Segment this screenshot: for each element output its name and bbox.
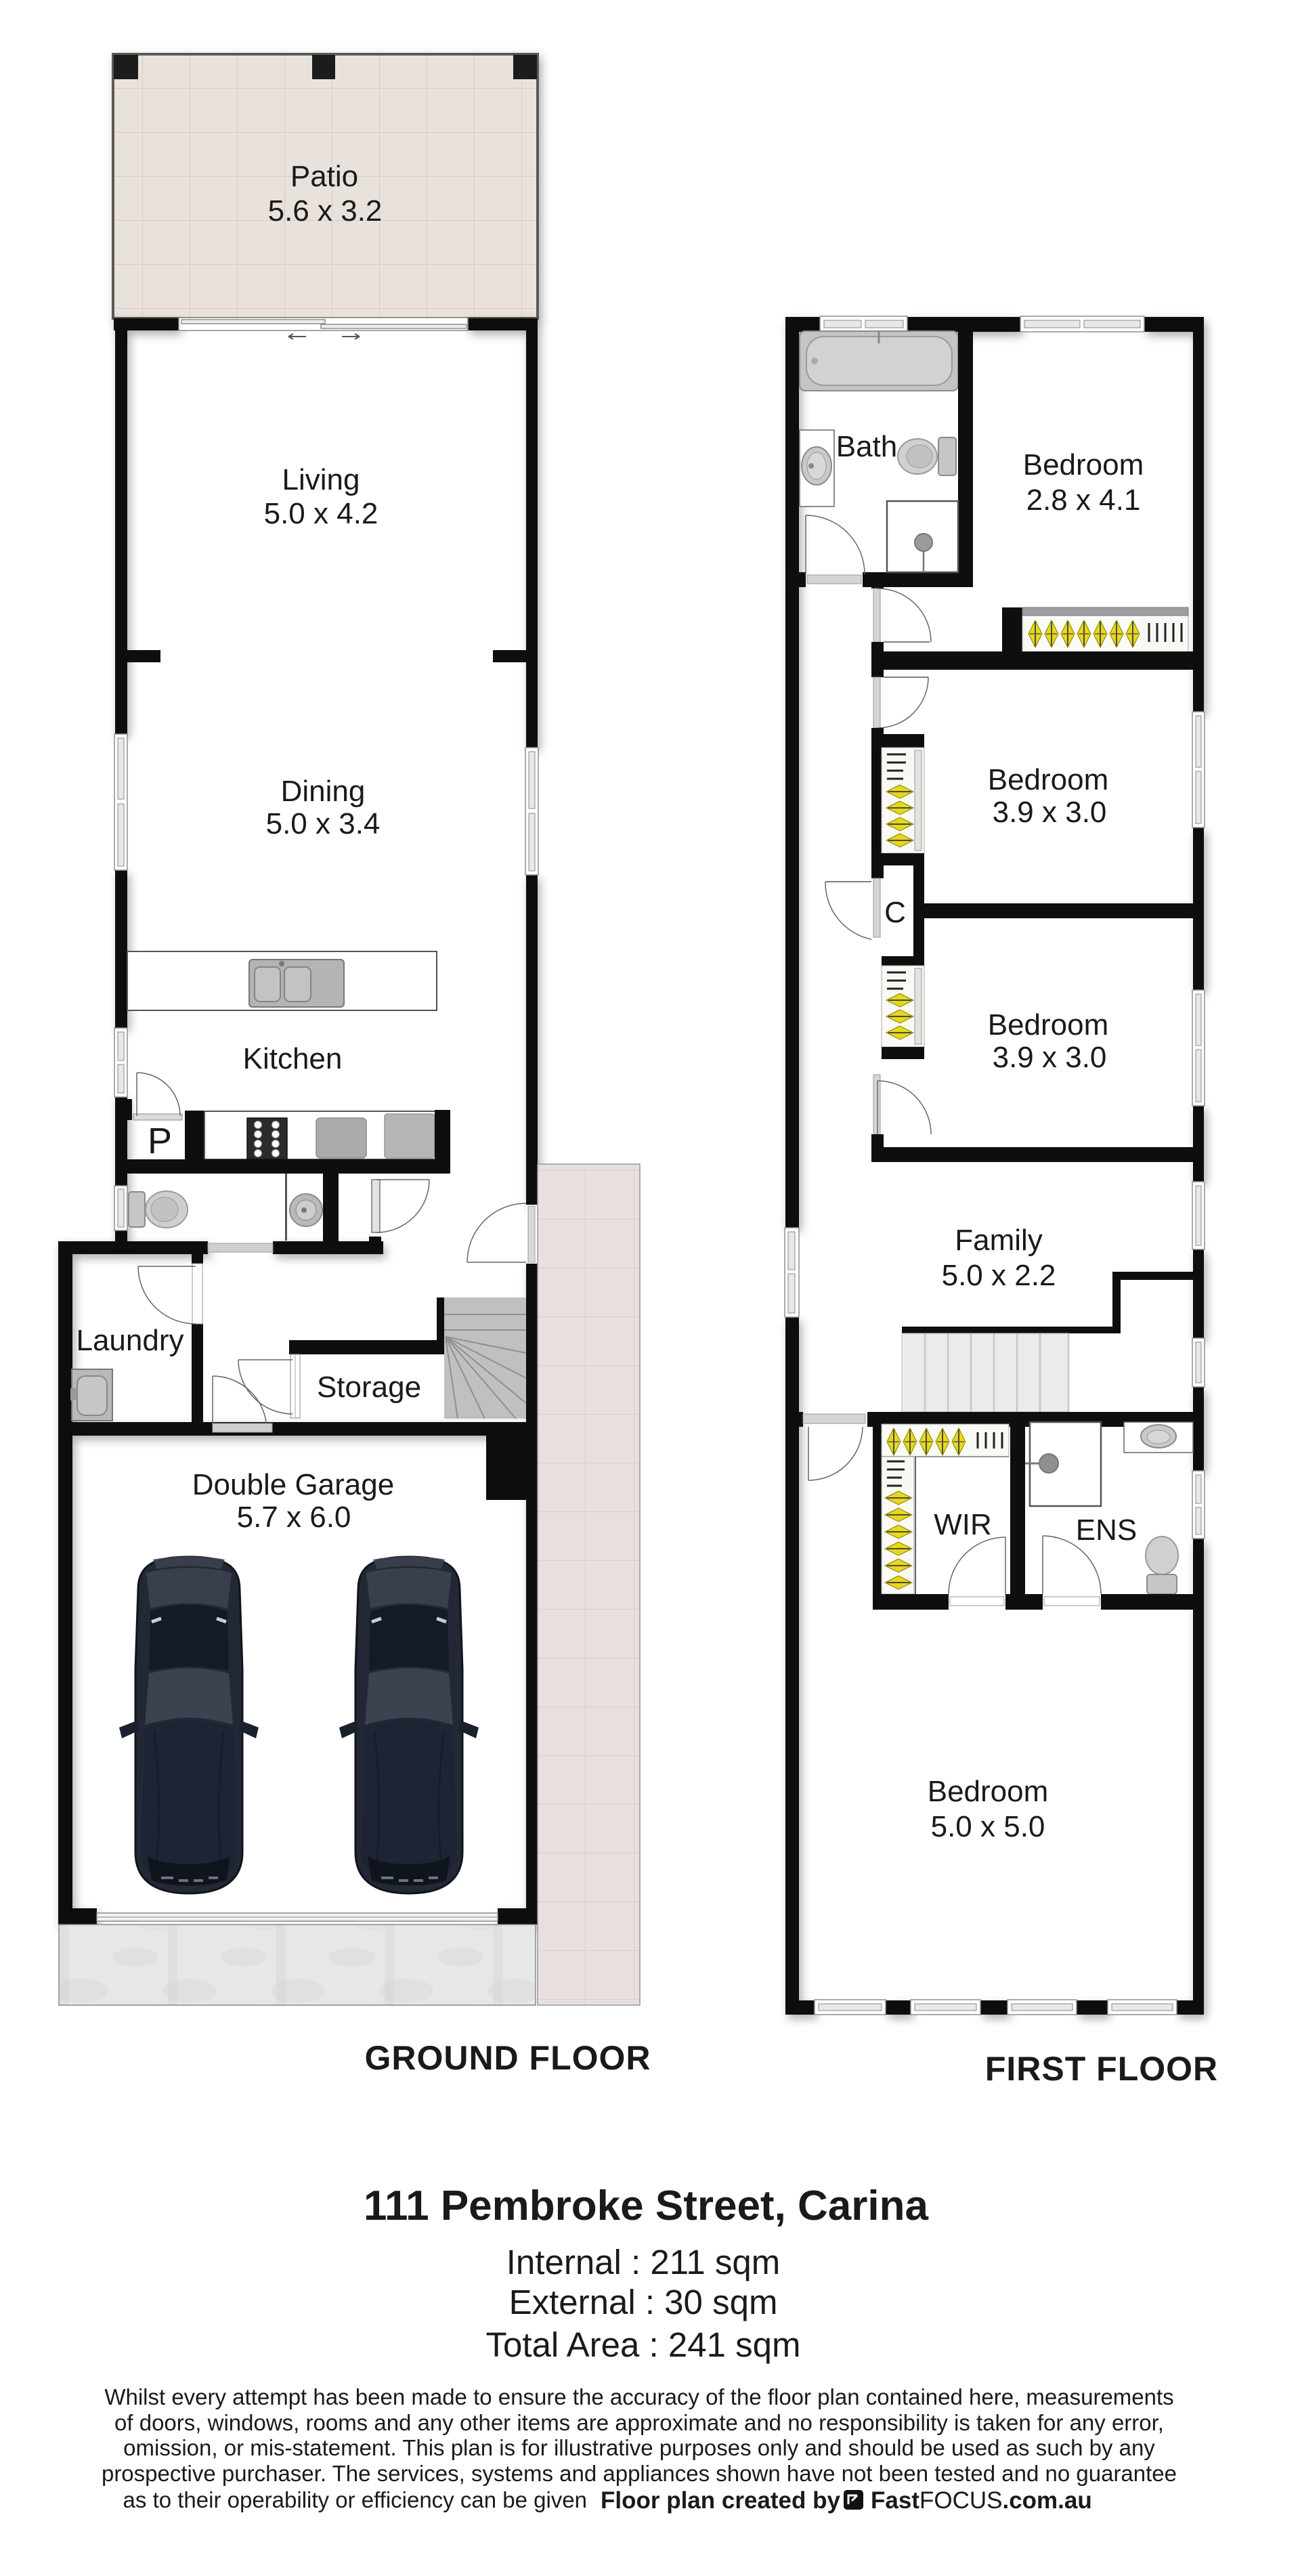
svg-text:5.6 x 3.2: 5.6 x 3.2 <box>268 194 383 228</box>
svg-text:ENS: ENS <box>1076 1514 1137 1547</box>
svg-text:FastFOCUS.com.au: FastFOCUS.com.au <box>871 2487 1092 2514</box>
svg-text:GROUND FLOOR: GROUND FLOOR <box>364 2039 651 2077</box>
svg-text:3.9 x 3.0: 3.9 x 3.0 <box>993 796 1107 829</box>
svg-text:Bedroom: Bedroom <box>988 1008 1109 1042</box>
svg-text:Bedroom: Bedroom <box>928 1775 1049 1808</box>
svg-text:WIR: WIR <box>934 1508 992 1541</box>
svg-text:as to their operability or eff: as to their operability or efficiency ca… <box>123 2487 587 2512</box>
svg-text:Floor plan created by: Floor plan created by <box>601 2487 840 2514</box>
svg-text:111 Pembroke Street, Carina: 111 Pembroke Street, Carina <box>364 2183 929 2229</box>
svg-text:5.0 x 5.0: 5.0 x 5.0 <box>931 1810 1045 1843</box>
svg-text:5.0 x 3.4: 5.0 x 3.4 <box>266 807 381 840</box>
svg-text:5.0 x 2.2: 5.0 x 2.2 <box>942 1259 1056 1292</box>
svg-text:Dining: Dining <box>281 775 366 808</box>
svg-text:Storage: Storage <box>317 1371 421 1404</box>
svg-text:External : 30 sqm: External : 30 sqm <box>509 2283 778 2321</box>
svg-text:Bedroom: Bedroom <box>988 763 1109 796</box>
svg-text:omission, or mis-statement. Th: omission, or mis-statement. This plan is… <box>123 2435 1155 2460</box>
svg-text:Double Garage: Double Garage <box>192 1468 394 1501</box>
svg-text:prospective purchaser. The ser: prospective purchaser. The services, sys… <box>102 2461 1177 2486</box>
svg-text:Bath: Bath <box>836 430 898 463</box>
svg-text:P: P <box>148 1121 172 1161</box>
svg-text:5.0 x 4.2: 5.0 x 4.2 <box>264 497 378 530</box>
svg-text:C: C <box>884 896 906 929</box>
svg-text:Living: Living <box>282 463 360 496</box>
svg-text:Family: Family <box>955 1224 1043 1257</box>
svg-text:Patio: Patio <box>290 160 358 193</box>
svg-text:Kitchen: Kitchen <box>243 1042 343 1075</box>
svg-text:Internal : 211 sqm: Internal : 211 sqm <box>506 2243 780 2281</box>
svg-text:3.9 x 3.0: 3.9 x 3.0 <box>993 1041 1107 1074</box>
svg-text:Laundry: Laundry <box>76 1324 183 1357</box>
svg-text:Total Area : 241 sqm: Total Area : 241 sqm <box>486 2325 801 2364</box>
svg-text:5.7 x 6.0: 5.7 x 6.0 <box>237 1501 351 1534</box>
svg-text:FIRST FLOOR: FIRST FLOOR <box>985 2050 1218 2088</box>
svg-text:Whilst every attempt has been: Whilst every attempt has been made to en… <box>104 2384 1173 2409</box>
svg-text:2.8 x 4.1: 2.8 x 4.1 <box>1026 484 1141 517</box>
svg-text:of doors, windows, rooms and a: of doors, windows, rooms and any other i… <box>114 2410 1164 2435</box>
svg-text:Bedroom: Bedroom <box>1023 448 1144 481</box>
